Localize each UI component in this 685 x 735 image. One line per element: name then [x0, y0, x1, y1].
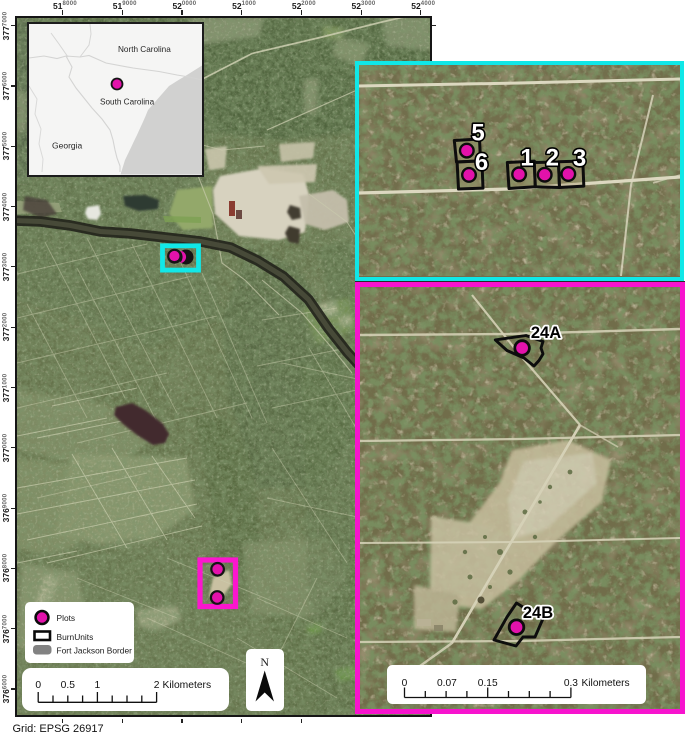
svg-text:0.5: 0.5 [61, 680, 76, 691]
svg-text:5: 5 [471, 120, 484, 147]
svg-text:1: 1 [95, 680, 101, 691]
svg-text:BurnUnits: BurnUnits [57, 631, 94, 641]
svg-text:Kilometers: Kilometers [582, 678, 630, 689]
svg-text:2: 2 [154, 680, 160, 691]
svg-text:0: 0 [402, 678, 408, 689]
svg-text:0.3: 0.3 [564, 678, 578, 689]
svg-text:0.15: 0.15 [478, 678, 498, 689]
svg-text:Georgia: Georgia [52, 141, 83, 151]
svg-text:N: N [260, 655, 269, 669]
svg-text:1: 1 [520, 144, 533, 171]
svg-text:Fort Jackson Border: Fort Jackson Border [57, 645, 133, 655]
svg-text:3: 3 [573, 145, 586, 172]
svg-text:24A: 24A [531, 324, 561, 342]
svg-text:0.07: 0.07 [437, 678, 457, 689]
svg-text:South Carolina: South Carolina [100, 98, 155, 107]
svg-text:Plots: Plots [57, 612, 76, 622]
svg-text:Kilometers: Kilometers [163, 680, 212, 691]
svg-text:0: 0 [35, 680, 41, 691]
svg-text:24B: 24B [523, 604, 553, 622]
svg-text:2: 2 [546, 144, 559, 171]
svg-text:North Carolina: North Carolina [118, 45, 171, 54]
svg-text:6: 6 [475, 149, 488, 176]
